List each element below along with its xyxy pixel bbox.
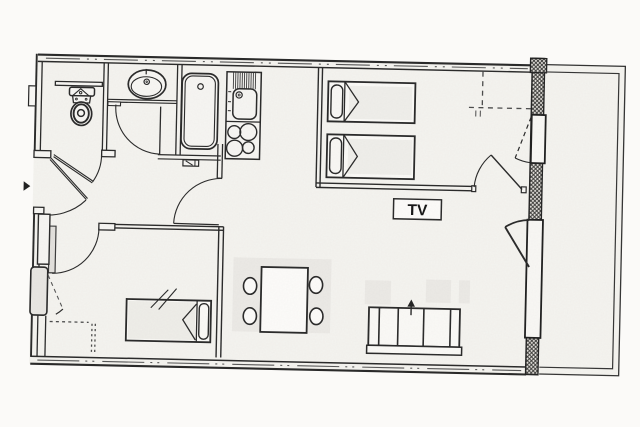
svg-text:TV: TV (407, 202, 428, 219)
